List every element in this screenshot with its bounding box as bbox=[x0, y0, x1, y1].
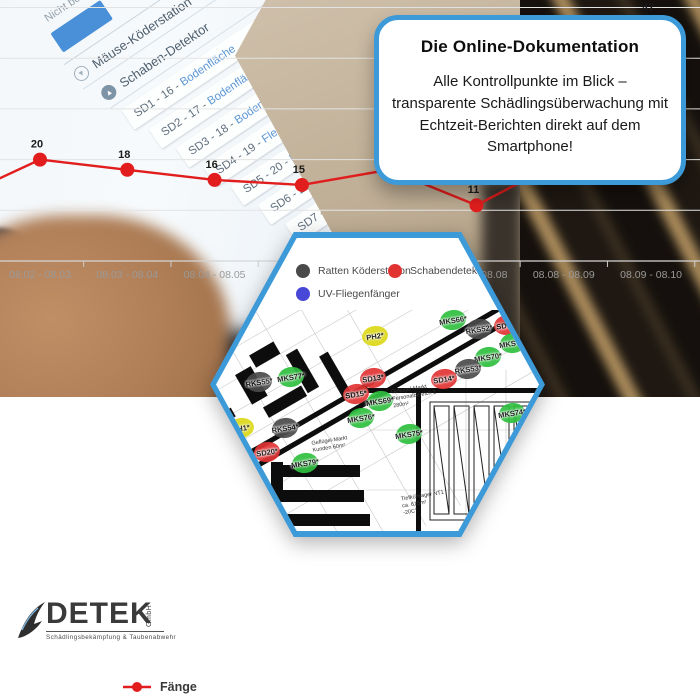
svg-text:15: 15 bbox=[293, 164, 305, 176]
plan-marker-label: MKS79* bbox=[290, 456, 319, 469]
legend-label: UV-Fliegenfänger bbox=[318, 288, 400, 300]
plan-marker-label: SD20* bbox=[256, 446, 279, 458]
plan-marker-mks: MKS78* bbox=[235, 482, 264, 506]
callout-body: Alle Kontrollpunkte im Blick – transpare… bbox=[391, 71, 669, 158]
legend-entry: UV-Fliegenfänger bbox=[296, 287, 400, 301]
svg-text:11: 11 bbox=[468, 184, 480, 196]
hexagon-floorplan: Mäuse KöderstationRatten KöderstationSch… bbox=[210, 232, 545, 537]
promo-graphic: Neu Nicht besucht ▾ Mäuse-Köderstation ▴… bbox=[0, 0, 700, 700]
svg-text:08.09 - 08.10: 08.09 - 08.10 bbox=[620, 269, 682, 281]
plan-marker-label: MKS78* bbox=[234, 487, 263, 500]
logo-tagline: Schädlingsbekämpfung & Taubenabwehr bbox=[46, 634, 176, 641]
plan-marker-label: RKS54* bbox=[271, 421, 299, 434]
info-callout-box: Die Online-Dokumentation Alle Kontrollpu… bbox=[374, 15, 686, 185]
legend-dot-icon bbox=[388, 264, 402, 278]
plan-marker-label: MKS69* bbox=[365, 394, 394, 407]
plan-marker-label: SD13* bbox=[362, 372, 385, 384]
plan-marker-label: PH2* bbox=[366, 330, 385, 342]
plan-marker-label: RKS53* bbox=[454, 362, 482, 375]
callout-title: Die Online-Dokumentation bbox=[391, 37, 669, 57]
svg-text:16: 16 bbox=[205, 159, 217, 171]
legend-dot-icon bbox=[296, 264, 310, 278]
legend-dot-icon bbox=[296, 287, 310, 301]
plan-marker-label: MKS76* bbox=[346, 411, 375, 424]
logo-rule bbox=[46, 631, 164, 632]
bird-icon bbox=[16, 600, 46, 642]
legend-series-label: Fänge bbox=[160, 680, 197, 694]
svg-text:20: 20 bbox=[31, 139, 43, 151]
plan-marker-label: SD14* bbox=[433, 373, 456, 385]
logo-name: DETEK bbox=[46, 600, 153, 629]
plan-marker-label: RKS52* bbox=[465, 322, 493, 335]
svg-text:08.02 - 08.03: 08.02 - 08.03 bbox=[9, 269, 71, 281]
plan-marker-label: SD17* bbox=[234, 477, 257, 489]
plan-marker-label: RKS55* bbox=[245, 375, 273, 388]
plan-marker-label: SD15* bbox=[345, 388, 368, 400]
chart-legend[interactable]: Fänge bbox=[122, 680, 197, 694]
legend-line-marker-icon bbox=[122, 681, 152, 693]
svg-text:47: 47 bbox=[642, 2, 654, 14]
detek-logo: DETEK GmbH Schädlingsbekämpfung & Tauben… bbox=[16, 600, 176, 642]
plan-marker-label: MKS66* bbox=[438, 313, 467, 326]
hexagon-content: Mäuse KöderstationRatten KöderstationSch… bbox=[216, 238, 539, 531]
svg-text:18: 18 bbox=[118, 149, 130, 161]
svg-text:08.03 - 08.04: 08.03 - 08.04 bbox=[96, 269, 158, 281]
plan-marker-sd: SD17* bbox=[231, 471, 260, 495]
logo-suffix: GmbH bbox=[146, 620, 153, 627]
plan-marker-label: MKS77* bbox=[276, 370, 305, 383]
plan-marker-label: MKS75* bbox=[394, 427, 423, 440]
